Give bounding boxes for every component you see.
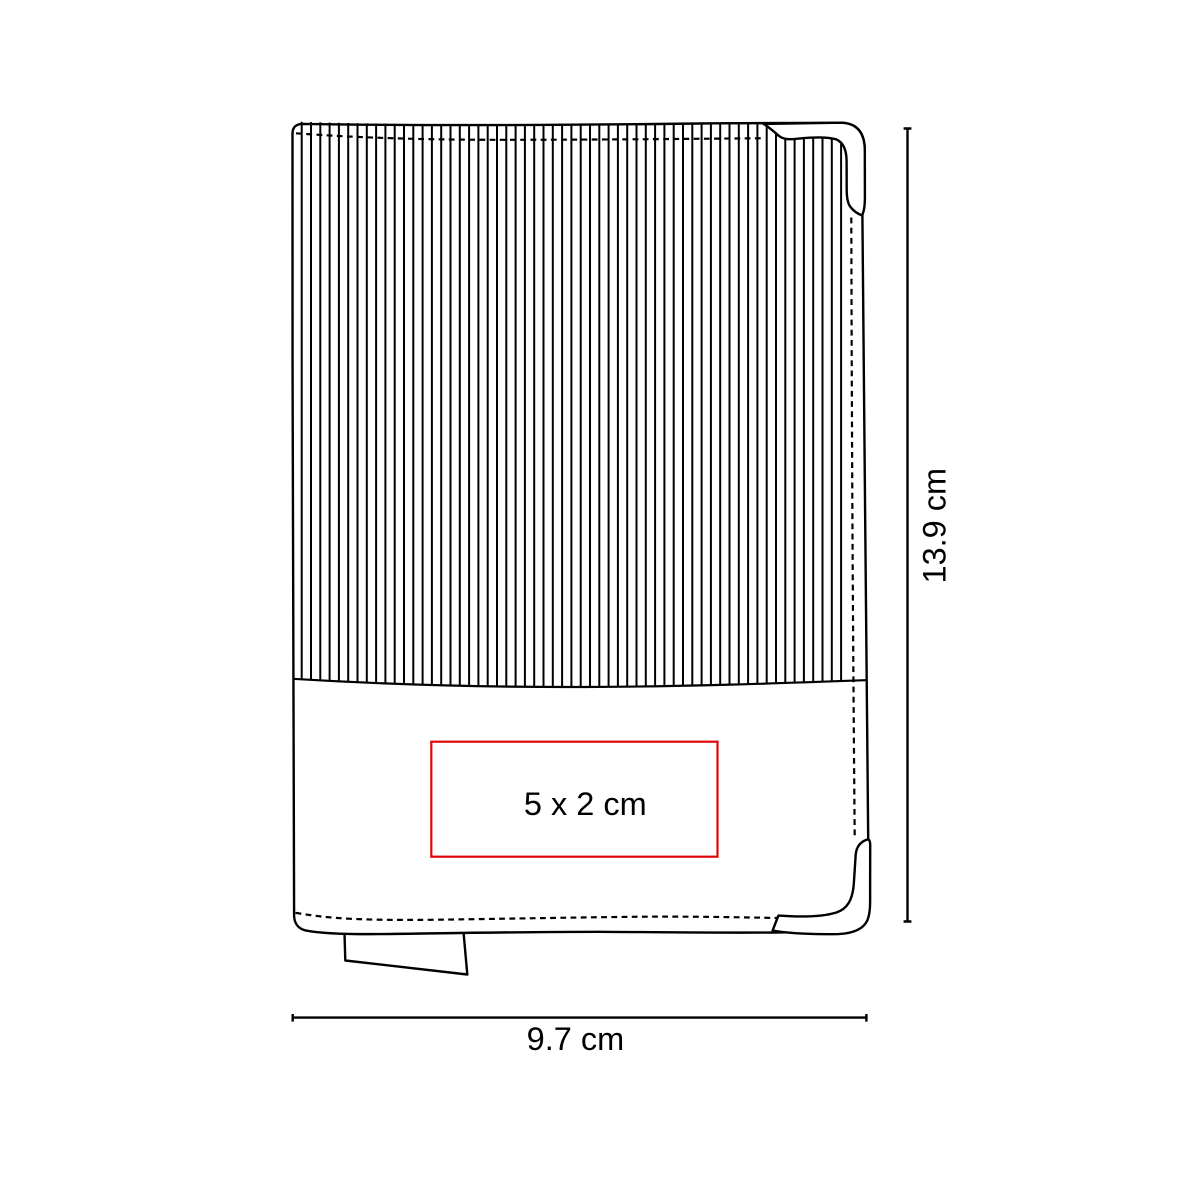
svg-text:13.9 cm: 13.9 cm — [917, 468, 953, 584]
svg-text:5 x 2 cm: 5 x 2 cm — [524, 786, 647, 822]
svg-text:9.7 cm: 9.7 cm — [527, 1021, 625, 1057]
